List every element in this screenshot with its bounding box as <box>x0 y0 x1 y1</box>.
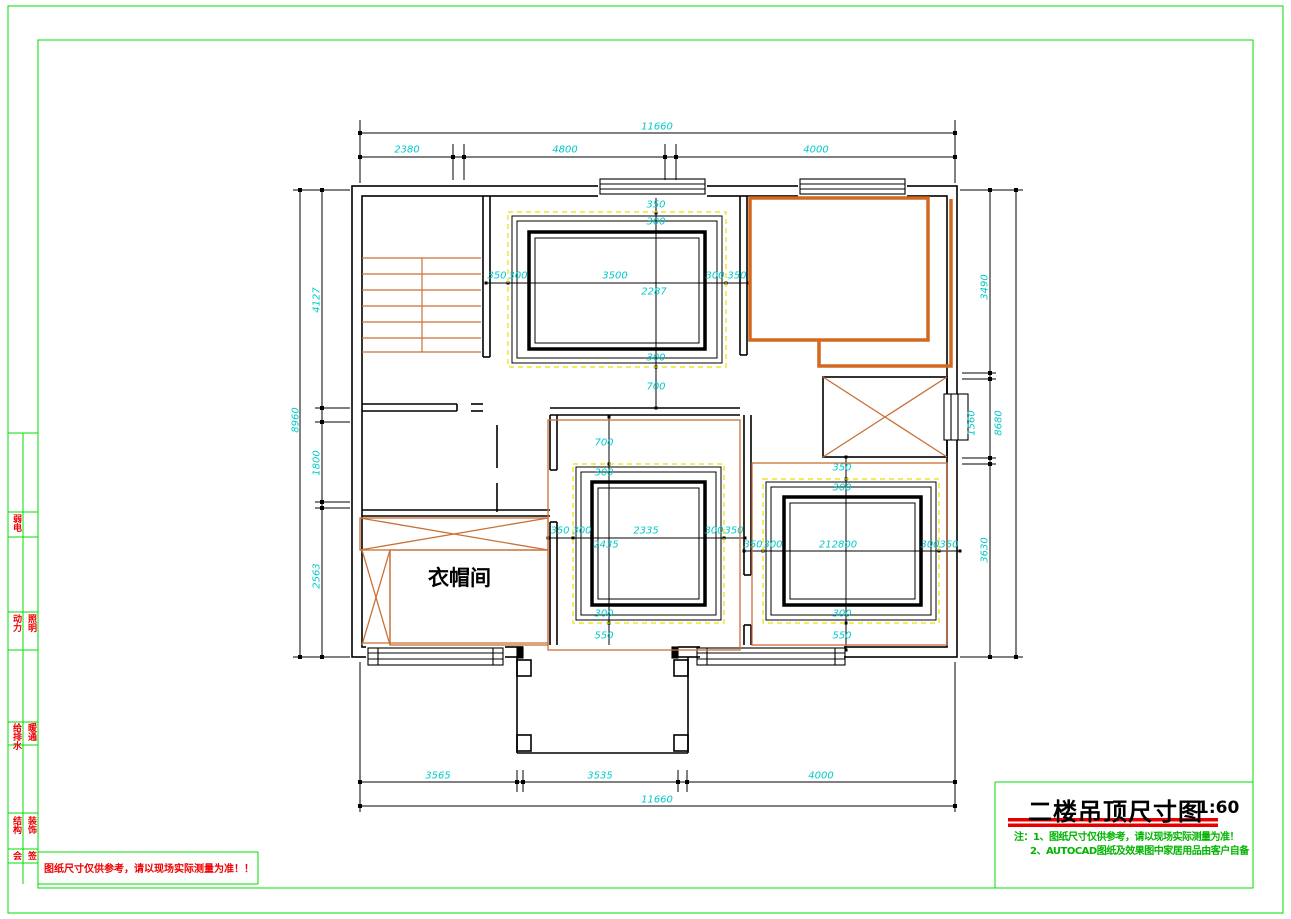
dim-right-seg1: 3490 <box>980 274 991 299</box>
dim-c-below-gap: 550 <box>832 631 851 642</box>
dim-a-right-offset: 350 <box>727 271 746 282</box>
orange-outlines <box>360 377 947 650</box>
dim-c-left-offset: 350 <box>743 540 762 551</box>
dim-b-right-offset: 350 <box>724 526 743 537</box>
strip-row5-left: 会 <box>10 851 21 860</box>
sheet-frame <box>8 6 1283 913</box>
warning-text: 图纸尺寸仅供参考，请以现场实际测量为准！！ <box>44 860 254 875</box>
dim-b-width: 2335 <box>633 526 658 537</box>
dim-right-seg3: 3630 <box>980 537 991 562</box>
dim-b-top-inset: 300 <box>594 468 613 479</box>
dim-bottom-seg2: 3535 <box>587 771 612 782</box>
dim-left-seg1: 4127 <box>312 287 323 312</box>
dim-a-top-offset: 350 <box>646 200 665 211</box>
strip-row3-left: 给排水 <box>10 723 21 750</box>
dim-b-height: 2435 <box>593 540 618 551</box>
dim-bottom-seg3: 4000 <box>808 771 833 782</box>
dim-right-seg2: 1560 <box>967 410 978 435</box>
dim-a-top-inset: 300 <box>646 217 665 228</box>
dim-a-height: 2287 <box>641 287 666 298</box>
chain-tick-squares <box>485 195 962 652</box>
dim-a-left-inset: 300 <box>508 271 527 282</box>
note-line-2: 2、AUTOCAD图纸及效果图中家居用品由客户自备 <box>1030 842 1249 857</box>
strip-row4-left: 结构 <box>10 816 21 834</box>
stairs <box>362 258 481 352</box>
dim-left-seg3: 2563 <box>312 563 323 588</box>
strip-row4-right: 装饰 <box>25 816 36 834</box>
dim-c-right-offset: 350 <box>939 540 958 551</box>
note-line-1: 注：1、图纸尺寸仅供参考，请以现场实际测量为准！ <box>1014 828 1239 843</box>
dim-right-total: 8680 <box>994 410 1005 435</box>
dim-a-width: 3500 <box>602 271 627 282</box>
strip-row3-right: 暖通 <box>25 723 36 741</box>
strip-row1-left: 弱电 <box>10 514 21 532</box>
dim-top-seg3: 4000 <box>803 145 828 156</box>
drawing-title: 二楼吊顶尺寸图 <box>1028 792 1203 827</box>
cloakroom-label: 衣帽间 <box>428 562 491 592</box>
strip-row2-right: 照明 <box>25 614 36 632</box>
cad-drawing: 11660 2380 4800 4000 3565 3535 4000 1166… <box>0 0 1291 919</box>
dim-bottom-total: 11660 <box>641 795 673 806</box>
dim-c-top-offset: 350 <box>832 463 851 474</box>
dim-a-bottom-inset: 300 <box>646 353 665 364</box>
dim-top-total: 11660 <box>641 122 673 133</box>
dim-bottom-seg1: 3565 <box>425 771 450 782</box>
drawing-scale: 1:60 <box>1197 798 1239 818</box>
dim-hall-gap: 700 <box>594 438 613 449</box>
dim-b-right-inset: 300 <box>704 526 723 537</box>
dim-left-seg2: 1800 <box>312 450 323 475</box>
strip-row5-right: 签 <box>25 851 36 860</box>
dim-c-top-inset: 300 <box>832 483 851 494</box>
dim-b-below-gap: 550 <box>594 631 613 642</box>
dim-top-seg2: 4800 <box>552 145 577 156</box>
dim-c-center: 212800 <box>819 540 857 551</box>
dim-a-right-inset: 300 <box>705 271 724 282</box>
bulkhead-outline <box>750 198 951 366</box>
dim-a-left-offset: 350 <box>487 271 506 282</box>
dim-a-below-gap: 700 <box>646 382 665 393</box>
dim-b-left-offset: 350 <box>550 526 569 537</box>
floor-plan-canvas <box>0 0 1291 919</box>
dim-top-seg1: 2380 <box>394 145 419 156</box>
dim-left-total: 8960 <box>291 407 302 432</box>
dim-b-bottom-inset: 300 <box>594 609 613 620</box>
dim-c-right-inset: 300 <box>920 540 939 551</box>
dim-c-bottom-inset: 300 <box>832 609 851 620</box>
dim-b-left-inset: 300 <box>572 526 591 537</box>
strip-row2-left: 动力 <box>10 614 21 632</box>
dim-c-left-inset: 300 <box>763 540 782 551</box>
walls <box>352 186 957 753</box>
